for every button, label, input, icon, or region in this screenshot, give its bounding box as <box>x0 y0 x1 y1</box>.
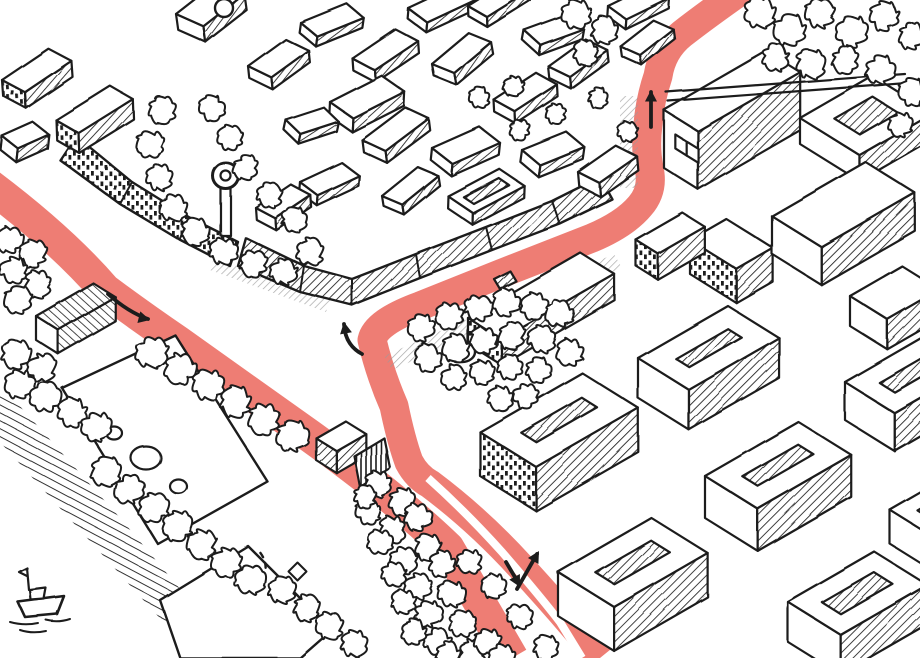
tree <box>136 131 164 157</box>
tree <box>498 322 526 350</box>
pond-large <box>131 447 161 470</box>
tree <box>482 574 508 600</box>
tree <box>367 529 393 554</box>
city-map-illustration <box>0 0 920 658</box>
park-tower-pole <box>221 189 231 236</box>
castle-turret <box>215 0 233 17</box>
tree <box>796 49 825 79</box>
tree <box>268 576 296 604</box>
map-viewport[interactable] <box>0 0 920 658</box>
tree <box>617 121 638 142</box>
tree <box>449 610 477 637</box>
pond-small-2 <box>170 479 187 493</box>
tree <box>573 39 597 65</box>
tree <box>457 550 482 574</box>
tree <box>391 589 416 614</box>
tree <box>546 103 566 124</box>
tree <box>503 76 524 97</box>
tree <box>487 386 513 412</box>
park-tower-core <box>221 171 231 181</box>
boat-cabin <box>30 588 46 600</box>
tree <box>533 634 558 658</box>
